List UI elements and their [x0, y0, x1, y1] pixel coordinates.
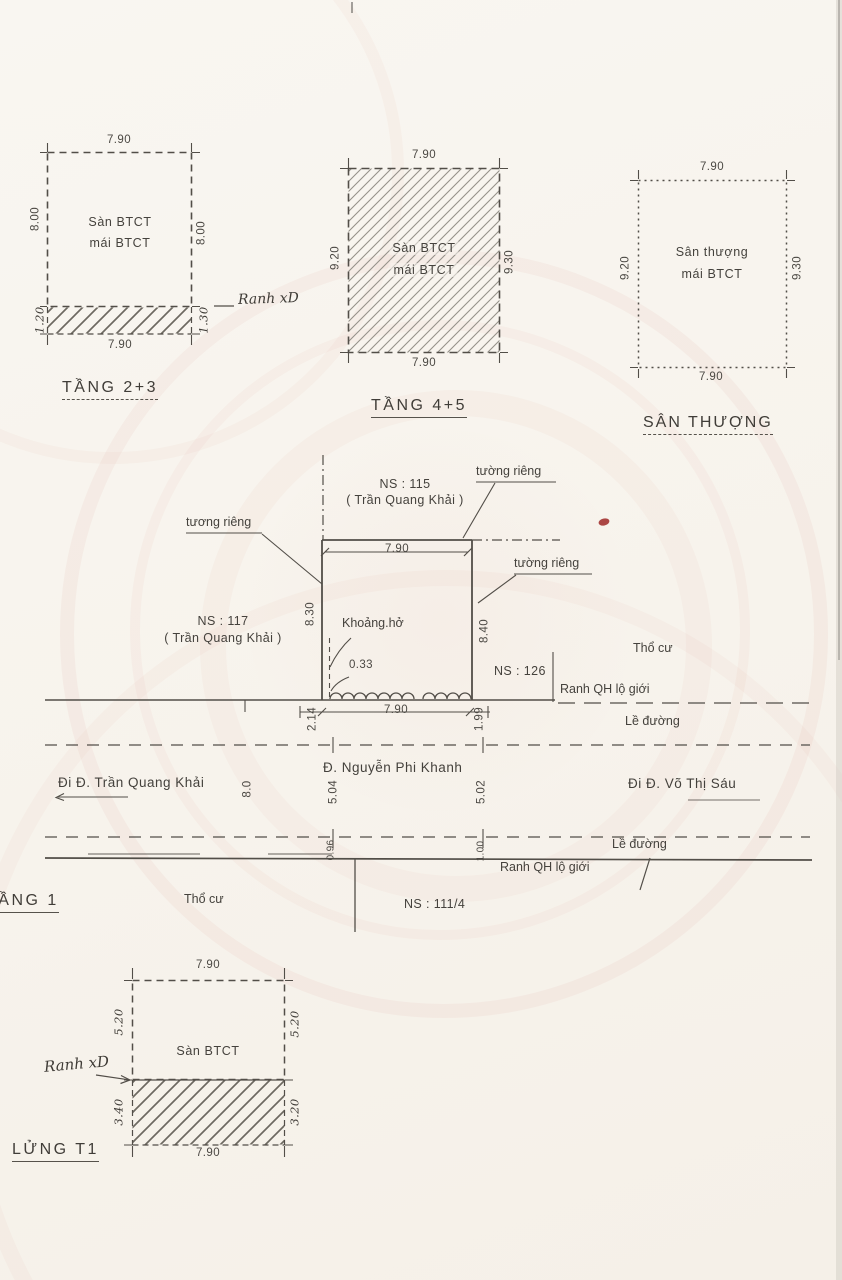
wall-note-right: tường riêng — [514, 556, 579, 570]
le-duong-upper: Lề đường — [625, 714, 680, 728]
road-dim-center-lower: 0.96 — [325, 840, 337, 861]
ns-111-4: NS : 111/4 — [404, 897, 465, 911]
street-left: Đi Đ. Trần Quang Khải — [58, 775, 204, 791]
dim-right-upper-lung: 5.20 — [288, 1010, 301, 1037]
dim-left-lower-lung: 3.40 — [112, 1098, 125, 1125]
ranh-qh-lower: Ranh QH lộ giới — [500, 860, 589, 874]
dim-right-site: 8.40 — [478, 619, 491, 643]
dim-left-tang45: 9.20 — [329, 246, 342, 270]
plan-title-tang23: TẦNG 2+3 — [62, 379, 158, 400]
dim-bottom-santhuong: 7.90 — [699, 371, 723, 384]
wall-note-left: tương riêng — [186, 515, 251, 529]
dim-right-santhuong: 9.30 — [791, 256, 804, 280]
ns-117-number: NS : 117 — [198, 614, 249, 628]
drawing-linework — [0, 0, 842, 1280]
dim-right-tang45: 9.30 — [503, 250, 516, 274]
red-pen-mark — [598, 517, 610, 526]
dim-top-tang45: 7.90 — [412, 149, 436, 162]
road-dim-right-upper: 5.02 — [475, 780, 488, 804]
dim-bottom-right-site: 1.99 — [473, 707, 486, 731]
dim-strip-left-tang23: 1.20 — [33, 306, 46, 333]
plan-title-tang1: TẦNG 1 — [0, 892, 59, 913]
wall-note-top: tường riêng — [476, 464, 541, 478]
dim-top-site: 7.90 — [385, 543, 409, 556]
dim-bottom-left-site: 2.14 — [306, 707, 319, 731]
plan-title-santhuong: SÂN THƯỢNG — [643, 414, 773, 435]
dim-left-site: 8.30 — [304, 602, 317, 626]
room-label-tang45-line1: Sàn BTCT — [389, 241, 458, 255]
tho-cu-lower: Thổ cư — [184, 892, 224, 906]
ns-115-street: ( Trần Quang Khải ) — [346, 493, 463, 507]
plan-title-lung: LỬNG T1 — [12, 1141, 99, 1162]
road-dim-right-lower: 1.00 — [475, 841, 487, 862]
room-label-text: Sàn BTCT — [389, 241, 458, 255]
ns-126: NS : 126 — [494, 664, 546, 678]
road-dim-center-upper: 5.04 — [327, 780, 340, 804]
road-dim-left: 8.0 — [241, 780, 254, 797]
plan-title-tang45: TẦNG 4+5 — [371, 397, 467, 418]
le-duong-lower: Lề đường — [612, 837, 667, 851]
ranh-xd-note-top: Ranh xD — [238, 290, 299, 308]
ns-117-street: ( Trần Quang Khải ) — [164, 631, 281, 645]
dim-left-upper-lung: 5.20 — [112, 1008, 125, 1035]
room-label-tang23-line2: mái BTCT — [89, 236, 150, 250]
room-label-tang23-line1: Sàn BTCT — [88, 215, 151, 229]
dim-right-lower-lung: 3.20 — [288, 1098, 301, 1125]
dim-left-santhuong: 9.20 — [619, 256, 632, 280]
gap-note: Khoảng.hở — [342, 616, 404, 630]
dim-right-tang23: 8.00 — [195, 221, 208, 245]
room-label-santhuong-line1: Sân thượng — [676, 245, 749, 259]
dim-strip-right-tang23: 1.30 — [197, 306, 210, 333]
scanned-drawing-page: 7.90 8.00 8.00 Sàn BTCT mái BTCT 1.20 1.… — [0, 0, 842, 1280]
dim-top-lung: 7.90 — [196, 959, 220, 972]
room-label-tang45-line2: mái BTCT — [390, 263, 457, 277]
dim-bottom-lung: 7.90 — [196, 1147, 220, 1160]
ns-115-number: NS : 115 — [380, 477, 431, 491]
street-right: Đi Đ. Võ Thị Sáu — [628, 776, 736, 792]
dim-top-santhuong: 7.90 — [700, 161, 724, 174]
room-label-santhuong-line2: mái BTCT — [681, 267, 742, 281]
dim-left-tang23: 8.00 — [29, 207, 42, 231]
dim-bottom-site: 7.90 — [384, 704, 408, 717]
gap-dim: 0.33 — [349, 659, 373, 672]
dim-bottom-tang45: 7.90 — [412, 357, 436, 370]
tho-cu-upper: Thổ cư — [633, 641, 673, 655]
room-label-lung: Sàn BTCT — [176, 1044, 239, 1058]
street-center: Đ. Nguyễn Phi Khanh — [323, 760, 462, 776]
dim-bottom-tang23: 7.90 — [108, 339, 132, 352]
room-label-text: mái BTCT — [390, 263, 457, 277]
dim-top-tang23: 7.90 — [107, 134, 131, 147]
ranh-qh-upper: Ranh QH lộ giới — [560, 682, 649, 696]
